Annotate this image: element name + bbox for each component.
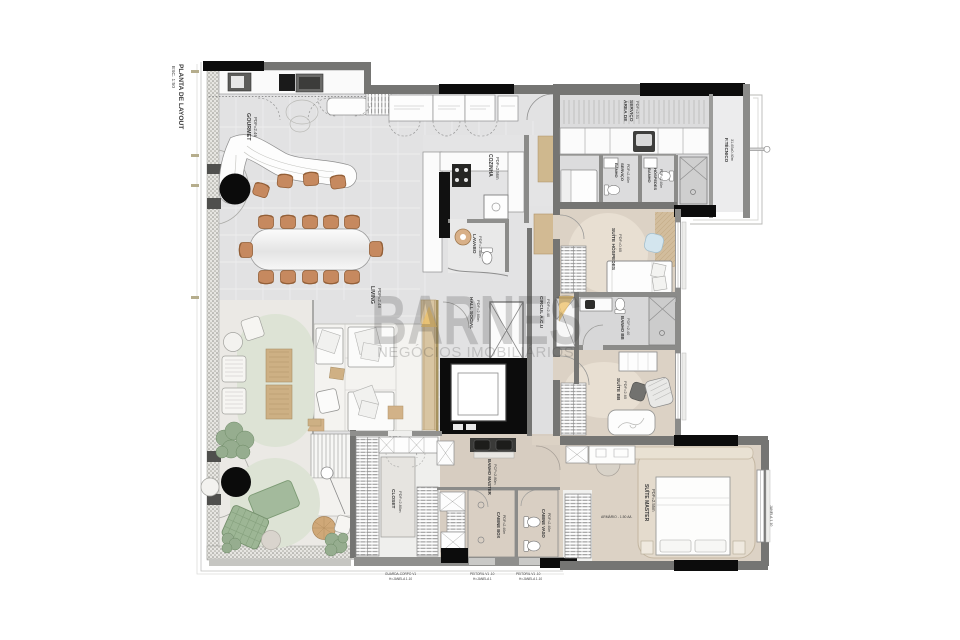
svg-text:SUÍTE MASTER: SUÍTE MASTER [643,484,651,522]
svg-text:BANHO BB: BANHO BB [620,316,625,340]
svg-text:NEGÓCIOS IMOBILIÁRIOS: NEGÓCIOS IMOBILIÁRIOS [377,344,574,361]
svg-text:BANHO: BANHO [614,163,619,178]
svg-text:PDF=2.80m: PDF=2.80m [398,491,403,513]
svg-text:ARMÁRIO - 1.50 A/L: ARMÁRIO - 1.50 A/L [601,515,632,519]
svg-text:PLANTA DE LAYOUT: PLANTA DE LAYOUT [177,64,184,129]
svg-text:PDF=2.40m: PDF=2.40m [547,513,551,532]
svg-text:BANHO: BANHO [647,168,652,183]
svg-text:LAVABO: LAVABO [471,234,477,254]
svg-text:PDF=2.40m: PDF=2.40m [502,515,506,534]
svg-text:H=JANELA 1.10: H=JANELA 1.10 [389,577,412,581]
svg-text:PEITORIL V1 .10: PEITORIL V1 .10 [470,572,495,576]
svg-text:PEITORIL V1 .10: PEITORIL V1 .10 [516,572,541,576]
svg-text:CABINE BOX: CABINE BOX [496,512,501,538]
svg-text:HÓSPEDES: HÓSPEDES [653,168,658,191]
svg-text:PDF=2.40m: PDF=2.40m [478,236,483,258]
svg-text:PCP=2.80m: PCP=2.80m [493,464,497,485]
svg-text:F.TÉCNICO: F.TÉCNICO [724,138,731,163]
svg-text:COZINHA: COZINHA [487,154,493,177]
svg-text:31.65x0.40m: 31.65x0.40m [730,139,734,161]
svg-text:PDF=2.65: PDF=2.65 [623,381,628,400]
svg-text:CLOSET: CLOSET [390,489,396,509]
svg-text:SERVIÇO: SERVIÇO [628,100,634,122]
svg-text:BANHO MASTER: BANHO MASTER [487,459,492,496]
svg-text:H=JANELA 1: H=JANELA 1 [473,577,492,581]
svg-text:SERVIÇO: SERVIÇO [620,163,625,181]
svg-text:GUARDA-CORPO V1: GUARDA-CORPO V1 [385,572,416,576]
svg-text:PDF=2.55m: PDF=2.55m [651,489,656,512]
svg-text:PDF=2.51: PDF=2.51 [635,101,640,120]
svg-text:H=JANELA 1.10: H=JANELA 1.10 [519,577,542,581]
svg-text:GOURMET: GOURMET [245,113,251,141]
svg-text:CABINE VASO: CABINE VASO [541,509,546,539]
svg-text:PDF=2.40m: PDF=2.40m [659,169,663,188]
svg-text:PDF=0.65: PDF=0.65 [618,234,623,253]
svg-text:PDF=2.46: PDF=2.46 [253,117,258,137]
svg-text:ESC. 1:50: ESC. 1:50 [170,66,176,88]
svg-text:ÁREA DE: ÁREA DE [622,100,629,122]
svg-text:PDF=2.56m: PDF=2.56m [495,157,500,180]
svg-text:PDF=2.40m: PDF=2.40m [626,164,630,183]
svg-text:PDF=2.40: PDF=2.40 [626,318,630,335]
